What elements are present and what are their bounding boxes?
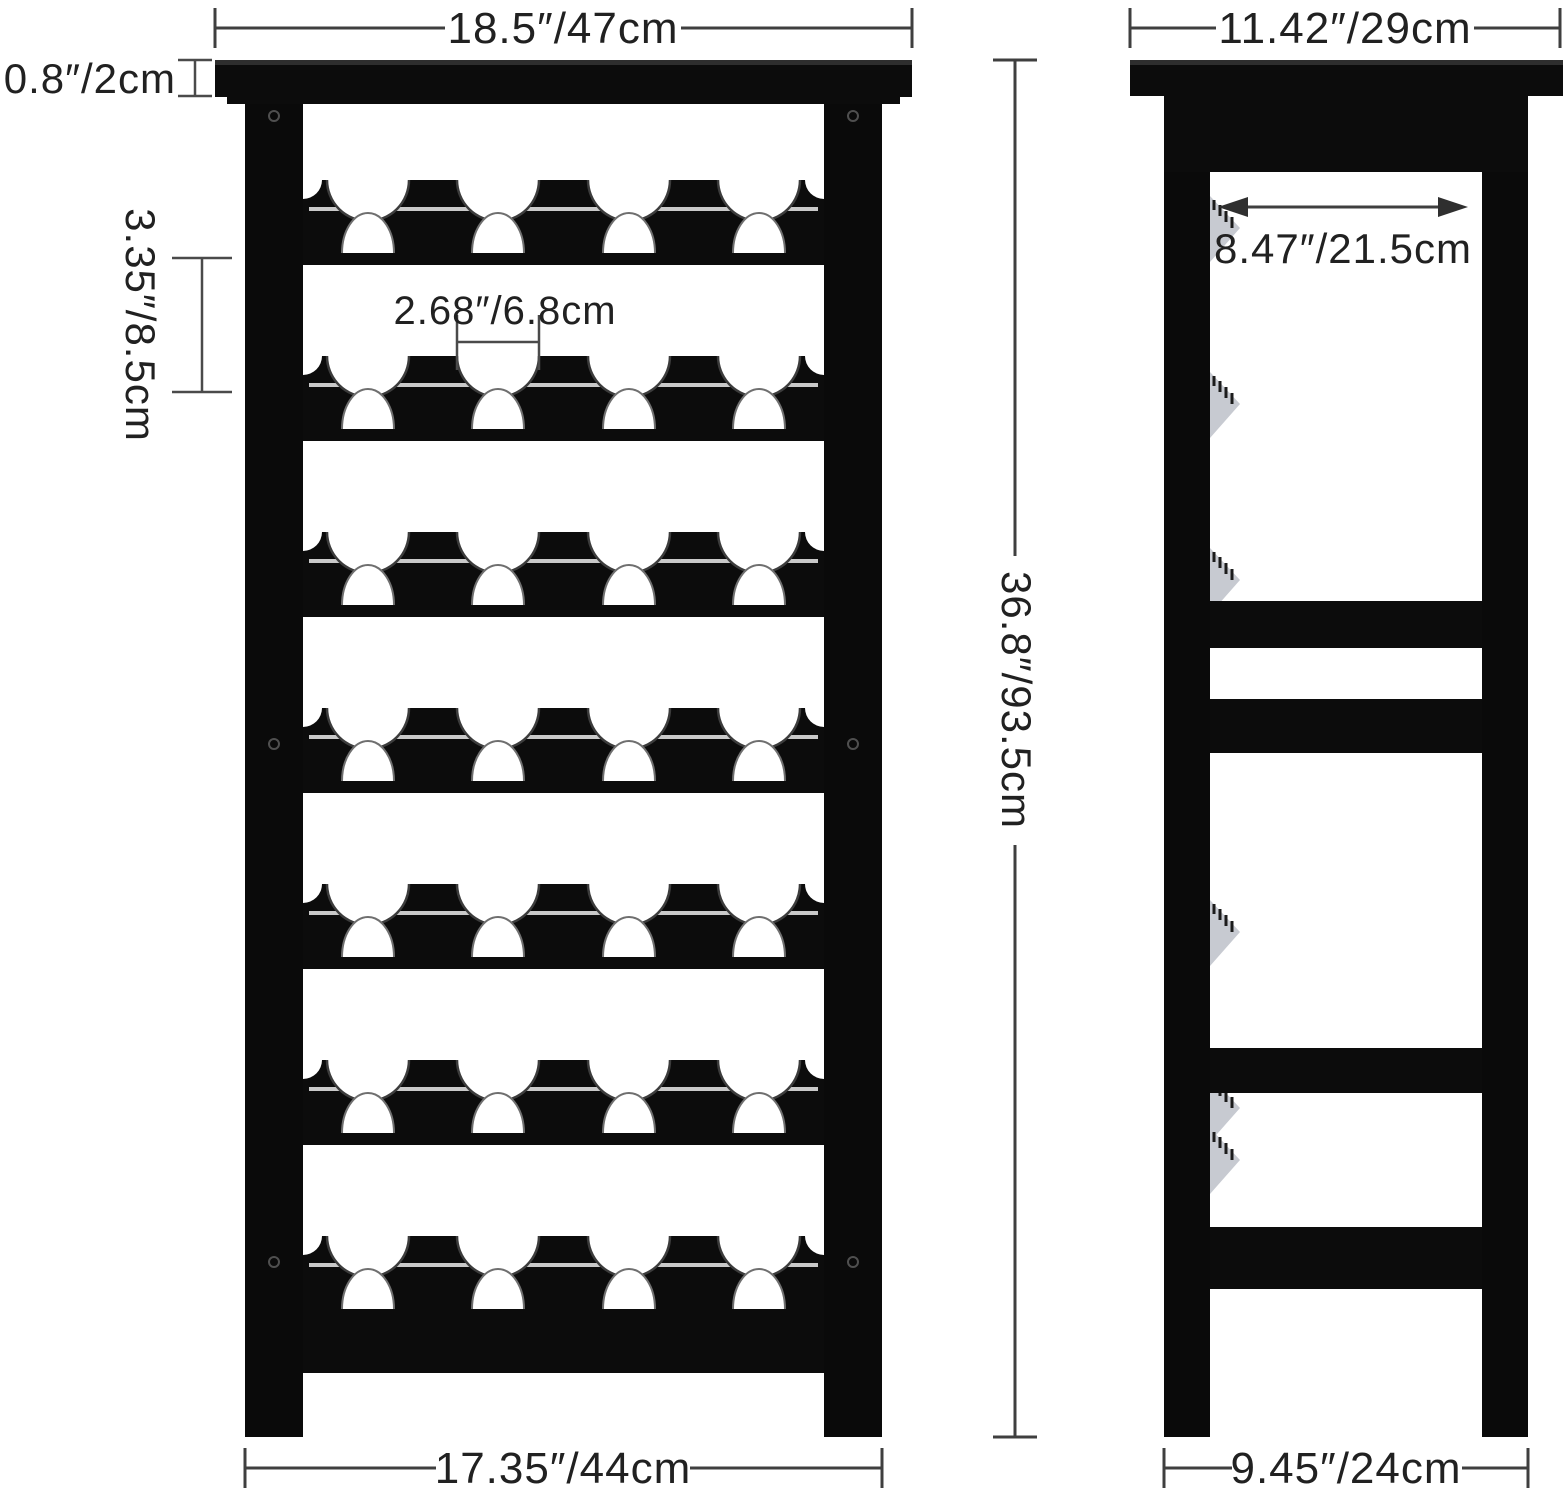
side-top-depth-label: 11.42″/29cm	[1218, 4, 1471, 53]
front-left-leg	[245, 96, 303, 1437]
side-tabletop-highlight	[1130, 60, 1563, 65]
bottle-rail-row	[284, 708, 843, 793]
front-view	[215, 60, 912, 1437]
front-top-width-label: 18.5″/47cm	[447, 4, 678, 53]
side-cross-rail	[1210, 1048, 1482, 1093]
slot-width-label: 2.68″/6.8cm	[393, 289, 616, 333]
side-apron	[1164, 96, 1528, 172]
side-bottom-stretcher	[1210, 1227, 1482, 1289]
dim-side-bottom-depth: 9.45″/24cm	[1164, 1444, 1528, 1493]
bottle-rail-row	[284, 180, 843, 265]
side-cross-rail	[1210, 601, 1482, 648]
dim-side-top-depth: 11.42″/29cm	[1130, 4, 1560, 53]
dim-front-top-width: 18.5″/47cm	[215, 4, 912, 53]
inner-depth-label: 8.47″/21.5cm	[1214, 225, 1472, 272]
bottle-rail-row	[284, 884, 843, 969]
front-bottom-stretcher	[295, 1321, 832, 1373]
side-left-leg	[1164, 96, 1210, 1437]
top-thickness-label: 0.8″/2cm	[4, 55, 176, 102]
side-right-leg	[1482, 96, 1528, 1437]
dim-top-thickness: 0.8″/2cm	[4, 55, 212, 102]
bottle-rail-row	[284, 356, 843, 441]
overall-height-label: 36.8″/93.5cm	[993, 571, 1040, 829]
arrow-right-icon	[1438, 197, 1468, 217]
bottle-rail-row	[284, 1236, 843, 1321]
dim-front-bottom-width: 17.35″/44cm	[245, 1444, 882, 1493]
side-tabletop	[1130, 60, 1563, 96]
row-spacing-label: 3.35″/8.5cm	[117, 208, 164, 442]
side-bottom-depth-label: 9.45″/24cm	[1230, 1444, 1461, 1493]
side-cross-rail	[1210, 699, 1482, 753]
dim-inner-depth: 8.47″/21.5cm	[1214, 197, 1472, 272]
front-tabletop-lip	[227, 96, 900, 104]
bottle-rail-row	[284, 1060, 843, 1145]
front-bottom-width-label: 17.35″/44cm	[435, 1444, 692, 1493]
diagram-canvas: 18.5″/47cm 0.8″/2cm 3.35″/8.5cm 2.68″/6.…	[0, 0, 1567, 1500]
front-tabletop-highlight	[215, 60, 912, 65]
dim-row-spacing: 3.35″/8.5cm	[117, 208, 232, 442]
rail-end-cap	[1210, 372, 1240, 438]
rail-end-cap	[1210, 900, 1240, 966]
front-right-leg	[824, 96, 882, 1437]
rail-end-cap	[1210, 1128, 1240, 1194]
dim-overall-height: 36.8″/93.5cm	[993, 60, 1040, 1437]
bottle-rail-row	[284, 532, 843, 617]
wine-rack-dimension-diagram: 18.5″/47cm 0.8″/2cm 3.35″/8.5cm 2.68″/6.…	[0, 0, 1567, 1500]
front-tabletop	[215, 60, 912, 97]
